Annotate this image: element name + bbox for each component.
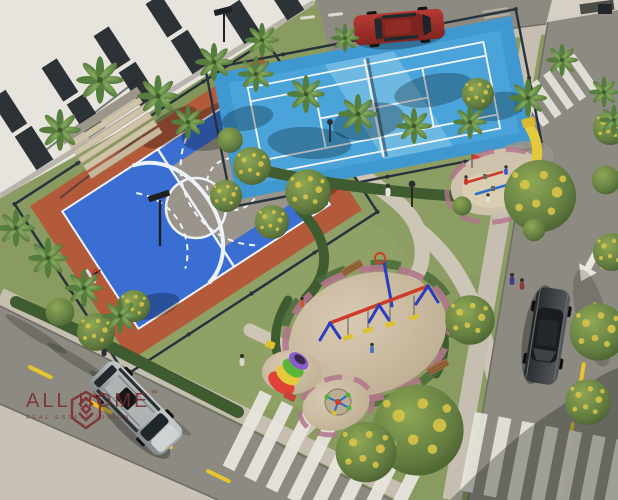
- child: [504, 165, 508, 175]
- merry-go-round: [325, 389, 352, 416]
- pedestrian: [520, 278, 525, 290]
- child: [370, 343, 374, 353]
- render-canvas: [0, 0, 618, 500]
- child: [486, 193, 490, 203]
- aerial-community-park-render: ALL HOME™ REAL ESTATE VISION: [0, 0, 618, 500]
- child: [464, 175, 468, 185]
- pedestrian: [386, 184, 391, 197]
- pedestrian: [510, 273, 515, 285]
- child: [300, 297, 304, 307]
- pedestrian: [240, 354, 245, 366]
